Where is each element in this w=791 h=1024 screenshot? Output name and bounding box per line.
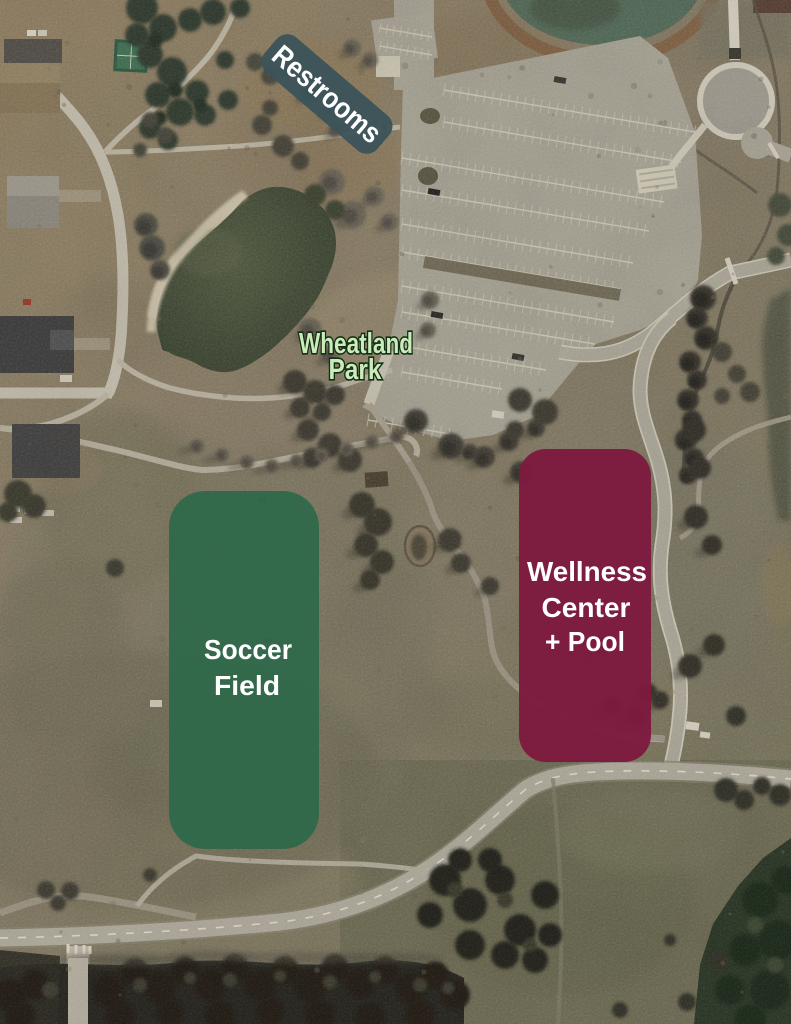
svg-text:Soccer: Soccer: [204, 634, 292, 665]
svg-text:+ Pool: + Pool: [545, 626, 625, 657]
svg-text:Center: Center: [542, 592, 631, 623]
svg-text:Wellness: Wellness: [527, 556, 647, 587]
svg-text:Field: Field: [214, 670, 280, 701]
svg-text:Park: Park: [329, 354, 383, 386]
